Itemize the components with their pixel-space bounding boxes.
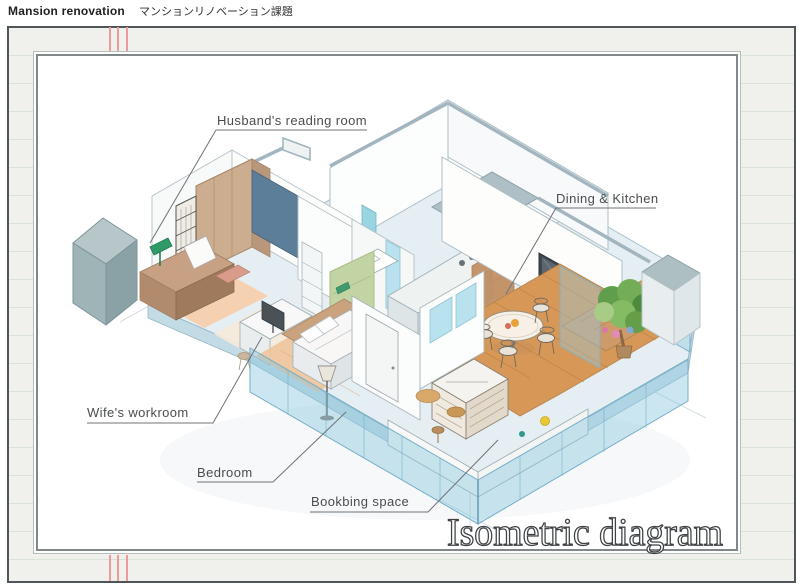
label-bookbinding-space: Bookbing space xyxy=(311,494,409,509)
shaft-box-right xyxy=(642,255,700,345)
presentation-board: { "header": { "title_en": "Mansion renov… xyxy=(0,0,800,588)
header-title-ja: マンションリノベーション課題 xyxy=(139,3,293,19)
page-header: Mansion renovation マンションリノベーション課題 xyxy=(8,3,293,19)
header-title-en: Mansion renovation xyxy=(8,4,125,18)
isometric-diagram-title: Isometric diagram xyxy=(447,511,723,554)
shaft-box-left xyxy=(73,218,137,325)
label-dining-kitchen: Dining & Kitchen xyxy=(556,191,659,206)
label-bedroom: Bedroom xyxy=(197,465,253,480)
roof-notch xyxy=(283,138,310,160)
label-wifes-workroom: Wife's workroom xyxy=(87,405,189,420)
label-husbands-reading-room: Husband's reading room xyxy=(217,113,367,128)
